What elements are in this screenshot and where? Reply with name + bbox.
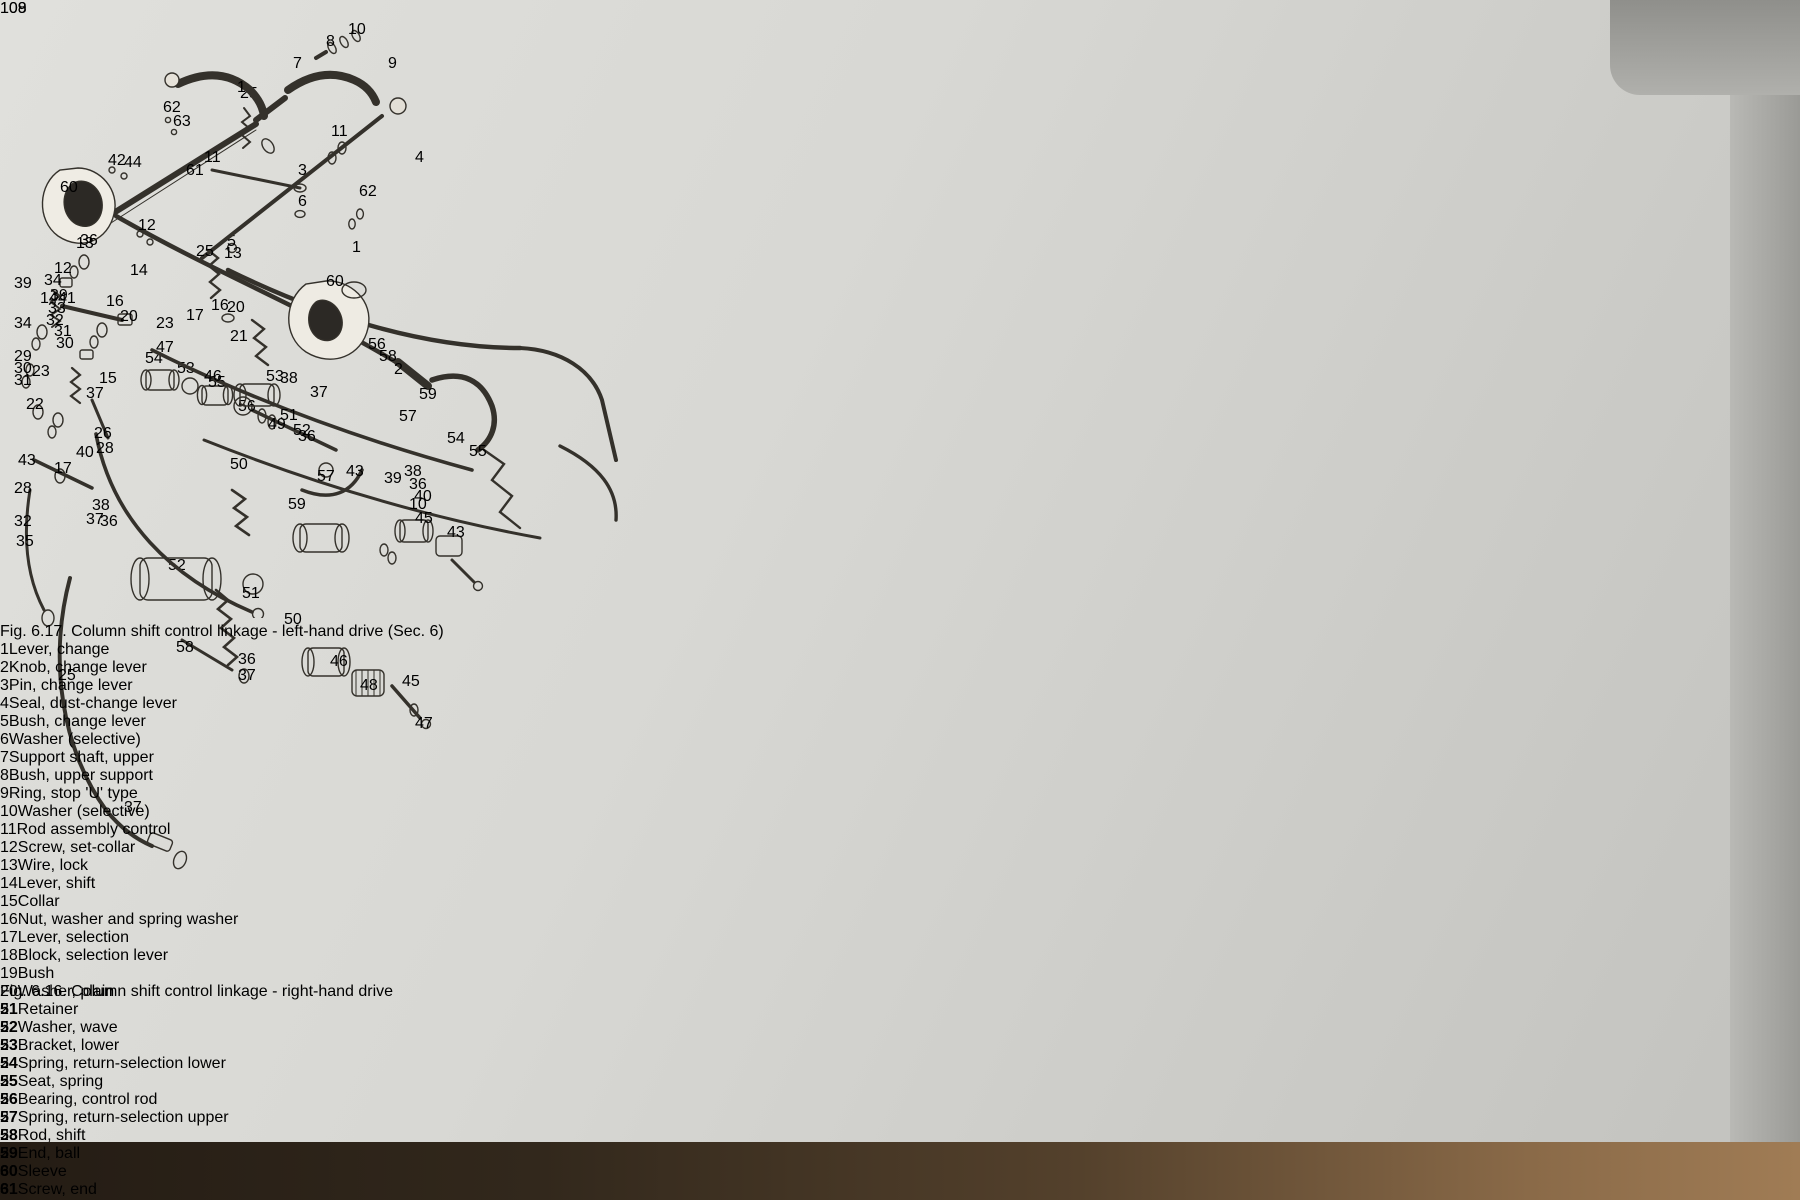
parts-item-label: Screw, set-collar: [18, 839, 135, 856]
parts-item-number: 14: [0, 875, 18, 892]
parts-list-item: 11Rod assembly control: [0, 821, 700, 839]
parts-list: 1Lever, change2Knob, change lever3Pin, c…: [0, 641, 700, 1200]
parts-item-label: Wire, lock: [18, 857, 88, 874]
parts-item-number: 11: [0, 821, 17, 838]
diagram-callout-number: 44: [124, 154, 142, 171]
parts-item-number: 9: [0, 785, 9, 802]
photo-of-open-manual: 108: [0, 0, 1800, 1200]
parts-list-item: 20Washer, plain: [0, 983, 700, 1001]
parts-item-label: End, ball: [18, 1145, 80, 1162]
parts-item-label: Washer, wave: [18, 1019, 118, 1036]
diagram-callout-number: 52: [293, 422, 311, 439]
parts-item-label: Collar: [18, 893, 60, 910]
parts-item-label: Lever, shift: [18, 875, 95, 892]
diagram-callout-number: 13: [224, 245, 242, 262]
parts-item-number: 18: [0, 947, 18, 964]
diagram-callout-number: 54: [447, 430, 465, 447]
right-page: 109: [0, 0, 700, 1200]
parts-list-item: 29End, ball: [0, 1145, 700, 1163]
parts-item-label: Rod, shift: [18, 1127, 86, 1144]
parts-item-label: Ring, stop 'U' type: [9, 785, 138, 802]
parts-list-item: 18Block, selection lever: [0, 947, 700, 965]
diagram-callout-number: 30: [56, 335, 74, 352]
parts-item-label: Lever, selection: [18, 929, 129, 946]
parts-item-label: Block, selection lever: [18, 947, 168, 964]
parts-list-item: 6Washer (selective): [0, 731, 700, 749]
diagram-callout-number: 25: [196, 243, 214, 260]
diagram-callout-number: 60: [326, 273, 344, 290]
diagram-callout-number: 12: [138, 217, 156, 234]
parts-item-number: 13: [0, 857, 18, 874]
parts-list-item: 23Bracket, lower: [0, 1037, 700, 1055]
parts-item-number: 22: [0, 1019, 18, 1036]
diagram-callout-number: 11: [331, 123, 348, 140]
parts-item-number: 30: [0, 1163, 18, 1180]
parts-list-item: 17Lever, selection: [0, 929, 700, 947]
parts-item-number: 16: [0, 911, 18, 928]
parts-item-label: Pin, change lever: [9, 677, 133, 694]
diagram-callout-number: 58: [379, 348, 397, 365]
parts-item-label: Washer (selective): [9, 731, 141, 748]
figure-caption-right: Fig. 6.17. Column shift control linkage …: [0, 623, 700, 641]
parts-item-number: 31: [0, 1181, 18, 1198]
diagram-callout-number: 62: [359, 183, 377, 200]
parts-item-label: Nut, washer and spring washer: [18, 911, 239, 928]
parts-item-number: 19: [0, 965, 18, 982]
diagram-callout-number: 43: [346, 463, 364, 480]
parts-list-item: 9Ring, stop 'U' type: [0, 785, 700, 803]
diagram-callout-number: 50: [230, 456, 248, 473]
parts-item-number: 10: [0, 803, 18, 820]
parts-item-label: Washer, plain: [18, 983, 114, 1000]
diagram-callout-number: 36: [80, 232, 98, 249]
parts-item-label: Bush: [18, 965, 54, 982]
parts-item-label: Sleeve: [18, 1163, 67, 1180]
parts-list-item: 24Spring, return-selection lower: [0, 1055, 700, 1073]
diagram-callout-number: 23: [156, 315, 174, 332]
diagram-callout-number: 21: [230, 328, 248, 345]
parts-item-number: 20: [0, 983, 18, 1000]
parts-item-number: 25: [0, 1073, 18, 1090]
parts-item-label: Retainer: [18, 1001, 78, 1018]
parts-list-item: 27Spring, return-selection upper: [0, 1109, 700, 1127]
diagram-callout-number: 28: [96, 440, 114, 457]
parts-list-item: 14Lever, shift: [0, 875, 700, 893]
diagram-callout-number: 39: [384, 470, 402, 487]
parts-item-number: 12: [0, 839, 18, 856]
parts-list-item: 30Sleeve: [0, 1163, 700, 1181]
parts-list-item: 8Bush, upper support: [0, 767, 700, 785]
diagram-callout-number: 37: [86, 385, 104, 402]
parts-item-number: 15: [0, 893, 18, 910]
parts-item-number: 1: [0, 641, 9, 658]
parts-list-item: 22Washer, wave: [0, 1019, 700, 1037]
parts-list-item: 31Screw, end: [0, 1181, 700, 1199]
parts-item-number: 4: [0, 695, 9, 712]
exploded-diagram-fig-6-17: 1116212424436343933323130142513601620172…: [0, 18, 700, 618]
diagram-callout-number: 59: [419, 386, 437, 403]
parts-list-item: 25Seat, spring: [0, 1073, 700, 1091]
parts-item-number: 23: [0, 1037, 18, 1054]
parts-item-number: 3: [0, 677, 9, 694]
parts-list-item: 28Rod, shift: [0, 1127, 700, 1145]
diagram-callout-number: 17: [186, 307, 204, 324]
parts-item-number: 6: [0, 731, 9, 748]
diagram-callout-number: 43: [447, 524, 465, 541]
parts-list-item: 26Bearing, control rod: [0, 1091, 700, 1109]
diagram-callout-number: 55: [469, 443, 487, 460]
diagram-callout-number: 45: [415, 510, 433, 527]
parts-item-number: 5: [0, 713, 9, 730]
diagram-labels-right: 1116212424436343933323130142513601620172…: [44, 79, 487, 541]
parts-item-label: Seal, dust-change lever: [9, 695, 177, 712]
parts-item-number: 21: [0, 1001, 18, 1018]
diagram-callout-number: 46: [204, 368, 222, 385]
parts-item-number: 29: [0, 1145, 18, 1162]
parts-list-column-2: 17Lever, selection18Block, selection lev…: [0, 929, 700, 1199]
diagram-callout-number: 53: [266, 368, 284, 385]
parts-item-label: Screw, end: [18, 1181, 97, 1198]
diagram-callout-number: 57: [399, 408, 417, 425]
parts-list-item: 12Screw, set-collar: [0, 839, 700, 857]
parts-list-item: 7Support shaft, upper: [0, 749, 700, 767]
parts-list-item: 1Lever, change: [0, 641, 700, 659]
page-number-right: 109: [0, 0, 700, 18]
diagram-callout-number: 14: [130, 262, 148, 279]
parts-list-item: 5Bush, change lever: [0, 713, 700, 731]
parts-item-label: Bearing, control rod: [18, 1091, 158, 1108]
parts-list-item: 19Bush: [0, 965, 700, 983]
parts-list-item: 4Seal, dust-change lever: [0, 695, 700, 713]
parts-item-label: Seat, spring: [18, 1073, 103, 1090]
background-band: [1730, 0, 1800, 1200]
parts-item-label: Bush, change lever: [9, 713, 146, 730]
parts-list-item: 16Nut, washer and spring washer: [0, 911, 700, 929]
parts-item-number: 28: [0, 1127, 18, 1144]
parts-item-label: Knob, change lever: [9, 659, 147, 676]
parts-list-item: 3Pin, change lever: [0, 677, 700, 695]
parts-item-label: Support shaft, upper: [9, 749, 154, 766]
parts-item-number: 2: [0, 659, 9, 676]
parts-item-number: 7: [0, 749, 9, 766]
parts-list-column-1: 1Lever, change2Knob, change lever3Pin, c…: [0, 641, 700, 929]
parts-list-item: 21Retainer: [0, 1001, 700, 1019]
parts-item-label: Rod assembly control: [17, 821, 171, 838]
parts-item-label: Spring, return-selection lower: [18, 1055, 226, 1072]
parts-item-label: Bush, upper support: [9, 767, 153, 784]
background-corner: [1610, 0, 1800, 95]
parts-list-item: 2Knob, change lever: [0, 659, 700, 677]
diagram-callout-number: 20: [227, 299, 245, 316]
parts-list-item: 10Washer (selective): [0, 803, 700, 821]
diagram-callout-number: 1: [237, 79, 246, 96]
parts-item-number: 17: [0, 929, 18, 946]
parts-list-item: 15Collar: [0, 893, 700, 911]
parts-item-label: Spring, return-selection upper: [18, 1109, 229, 1126]
diagram-callout-number: 47: [156, 339, 174, 356]
parts-item-label: Washer (selective): [18, 803, 150, 820]
parts-item-number: 26: [0, 1091, 18, 1108]
parts-item-number: 27: [0, 1109, 18, 1126]
parts-item-label: Lever, change: [9, 641, 110, 658]
parts-item-number: 24: [0, 1055, 18, 1072]
parts-list-item: 13Wire, lock: [0, 857, 700, 875]
parts-item-label: Bracket, lower: [18, 1037, 119, 1054]
parts-item-number: 8: [0, 767, 9, 784]
